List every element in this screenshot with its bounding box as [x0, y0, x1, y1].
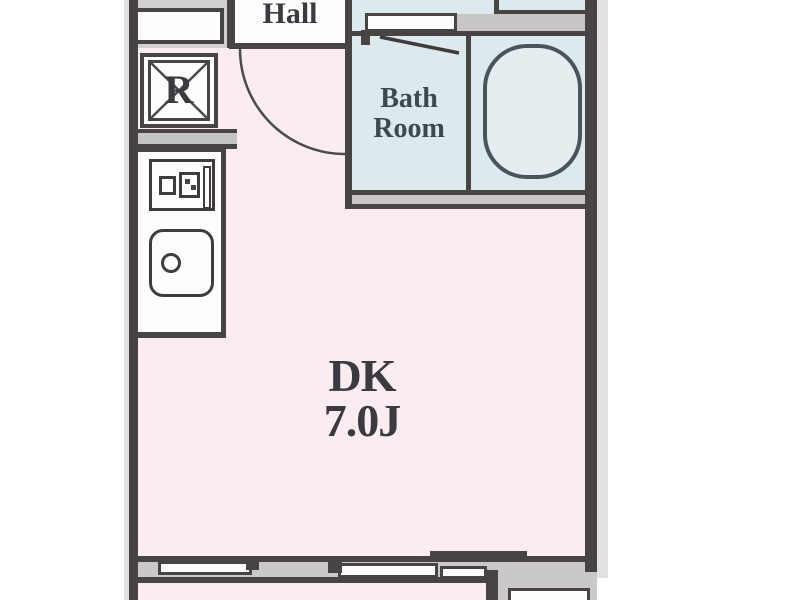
dk-label-name: DK — [282, 353, 442, 398]
hall-door-arc — [235, 45, 350, 160]
bottom-room-east-wall — [486, 570, 498, 600]
refrigerator-inner-box: R — [148, 60, 210, 121]
closet-door-bottom-right — [508, 588, 590, 600]
floorplan-canvas: Hall R — [0, 0, 800, 600]
sliding-door-panel-1 — [158, 561, 252, 575]
bathroom-label-line1: Bath — [352, 84, 466, 114]
refrigerator-box: R — [140, 53, 218, 128]
bathroom-door-jamb — [361, 30, 370, 45]
stove-burner-left — [159, 176, 176, 195]
bathroom-door-leaf — [375, 34, 465, 58]
hall-label: Hall — [232, 0, 348, 29]
west-outer-wall — [129, 0, 138, 600]
sink-faucet-icon — [161, 253, 181, 273]
dk-label: DK 7.0J — [282, 353, 442, 443]
stove-grill-bar — [203, 166, 211, 209]
stove-burner-mark — [185, 179, 190, 184]
stove-burner-right — [179, 172, 200, 198]
bathroom-label: Bath Room — [352, 84, 466, 144]
sliding-door-stop-b — [328, 562, 342, 573]
bathroom-label-line2: Room — [352, 114, 466, 144]
east-outer-wall — [585, 0, 597, 572]
dk-label-area: 7.0J — [282, 398, 442, 443]
hall-label-text: Hall — [262, 0, 317, 30]
stove-burner-mark — [191, 185, 196, 190]
sliding-door-stop-a — [246, 559, 259, 570]
sliding-door-panel-2 — [338, 563, 438, 578]
bathroom-south-wall — [345, 190, 600, 209]
bathroom-door-threshold — [365, 13, 457, 32]
toilet-floor — [498, 0, 587, 10]
refrigerator-label: R — [151, 70, 207, 110]
west-outer-edge — [124, 0, 129, 600]
bathtub-icon — [483, 44, 582, 179]
closet-box — [134, 8, 224, 44]
kitchen-counter — [138, 149, 226, 338]
bathroom-west-wall — [345, 0, 352, 209]
sink-icon — [149, 229, 214, 297]
east-outer-edge — [597, 0, 608, 578]
kitchen-north-wall — [130, 129, 237, 149]
stove-icon — [149, 159, 215, 211]
bathroom-divider-wall — [466, 36, 471, 192]
bathroom-north-wall-band — [457, 14, 600, 31]
bottom-room-floor — [138, 583, 486, 600]
